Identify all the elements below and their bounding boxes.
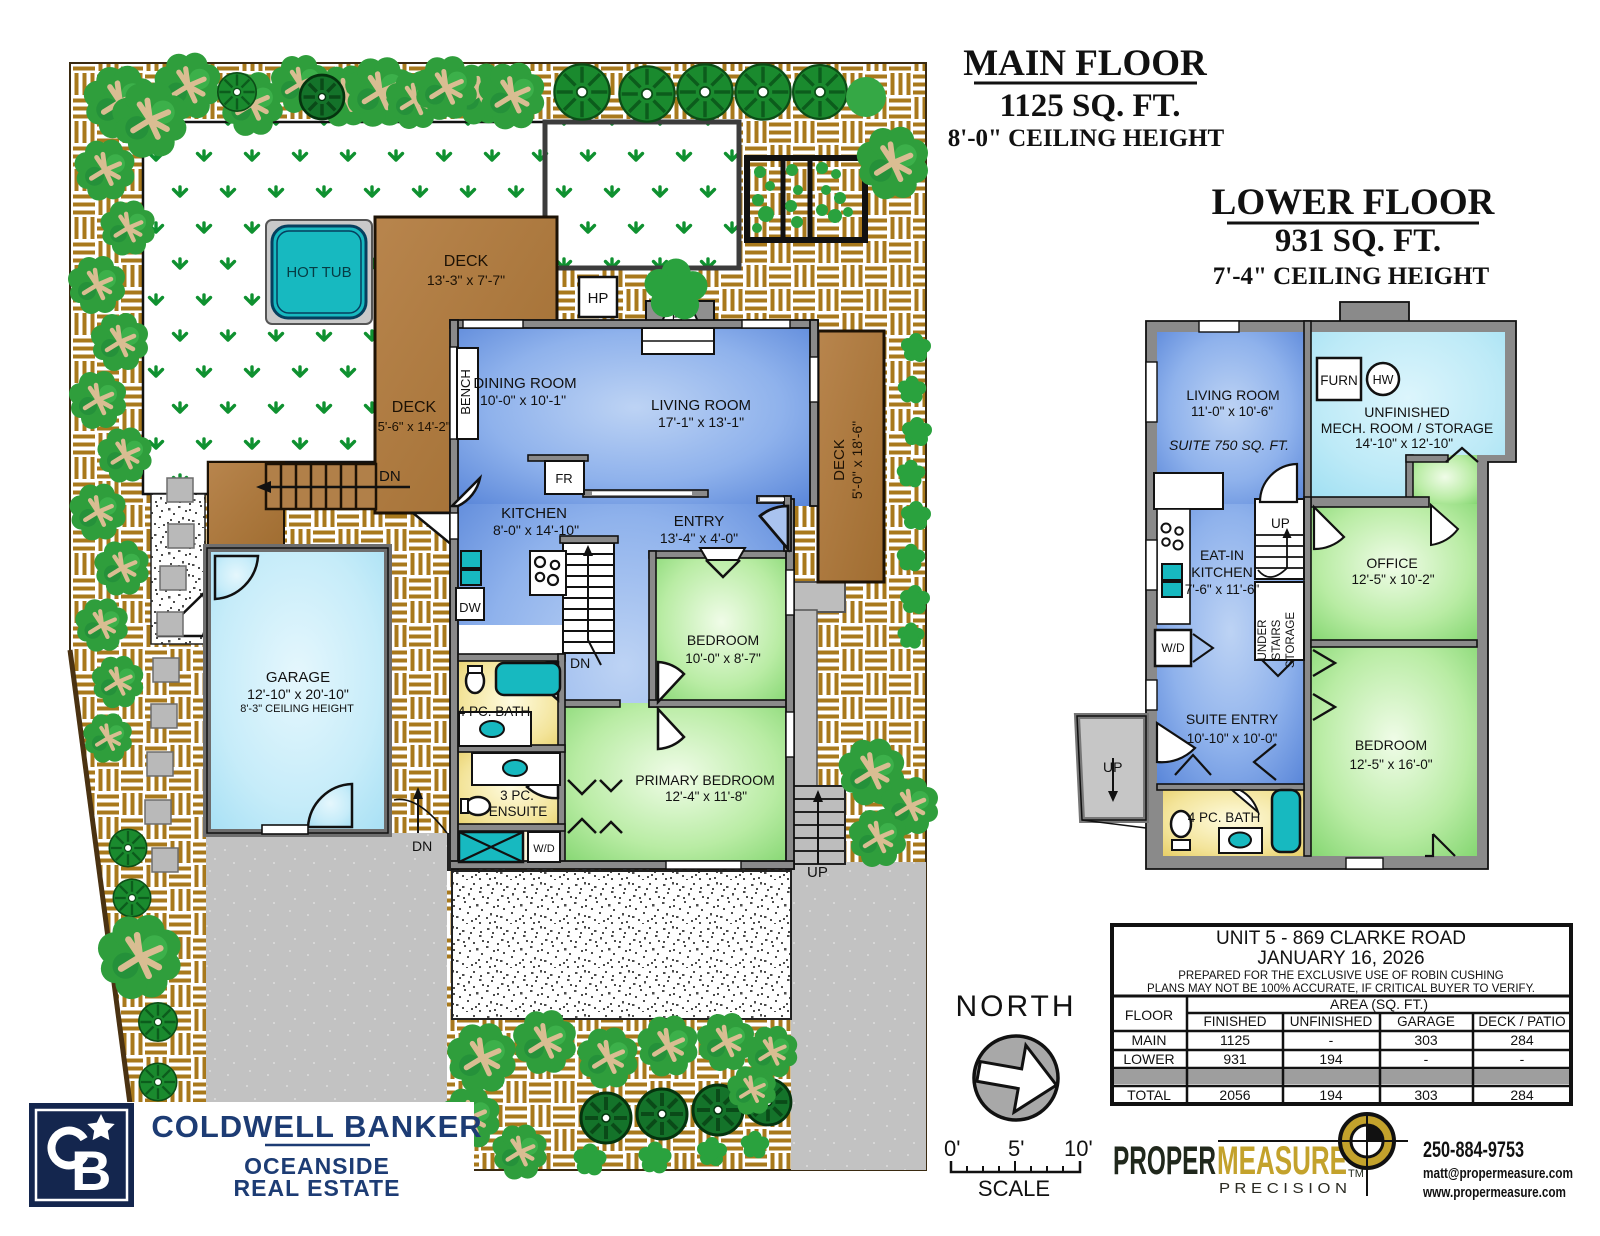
svg-text:11'-0" x 10'-6": 11'-0" x 10'-6": [1191, 404, 1273, 419]
svg-text:DW: DW: [459, 600, 481, 615]
svg-text:REAL ESTATE: REAL ESTATE: [234, 1175, 401, 1201]
svg-text:10'-10" x 10'-0": 10'-10" x 10'-0": [1187, 731, 1278, 746]
svg-text:PREPARED FOR THE EXCLUSIVE USE: PREPARED FOR THE EXCLUSIVE USE OF ROBIN …: [1178, 970, 1504, 982]
svg-text:8'-3" CEILING HEIGHT: 8'-3" CEILING HEIGHT: [240, 703, 354, 715]
svg-text:DN: DN: [570, 655, 590, 671]
svg-text:2056: 2056: [1219, 1087, 1250, 1103]
svg-text:EAT-IN: EAT-IN: [1200, 547, 1244, 563]
svg-text:-: -: [1329, 1032, 1334, 1048]
svg-text:HP: HP: [588, 290, 609, 307]
svg-text:4 PC. BATH: 4 PC. BATH: [458, 704, 531, 719]
svg-text:250-884-9753: 250-884-9753: [1423, 1137, 1524, 1162]
svg-text:GARAGE: GARAGE: [1397, 1014, 1455, 1029]
svg-text:5'-0" x 18'-6": 5'-0" x 18'-6": [849, 421, 865, 499]
svg-text:UNDER: UNDER: [1257, 620, 1269, 661]
svg-text:PLANS MAY NOT BE 100% ACCURATE: PLANS MAY NOT BE 100% ACCURATE, IF CRITI…: [1147, 983, 1535, 995]
svg-text:-: -: [1520, 1051, 1525, 1067]
svg-text:FURN: FURN: [1320, 373, 1358, 388]
svg-text:1125 SQ. FT.: 1125 SQ. FT.: [1000, 88, 1181, 124]
svg-text:194: 194: [1319, 1087, 1343, 1103]
svg-text:12'-10" x 20'-10": 12'-10" x 20'-10": [247, 686, 349, 702]
svg-text:OFFICE: OFFICE: [1366, 555, 1417, 571]
svg-text:HW: HW: [1373, 373, 1394, 387]
svg-text:LIVING ROOM: LIVING ROOM: [651, 397, 751, 414]
svg-text:TOTAL: TOTAL: [1127, 1087, 1171, 1103]
svg-text:5': 5': [1008, 1136, 1024, 1161]
svg-text:JANUARY 16, 2026: JANUARY 16, 2026: [1257, 948, 1424, 969]
svg-text:ENSUITE: ENSUITE: [489, 804, 548, 819]
svg-text:UNFINISHED: UNFINISHED: [1364, 404, 1450, 420]
svg-text:DINING ROOM: DINING ROOM: [473, 375, 576, 392]
svg-text:LOWER: LOWER: [1123, 1051, 1174, 1067]
svg-text:7'-6" x 11'-6": 7'-6" x 11'-6": [1185, 582, 1260, 597]
svg-text:1125: 1125: [1220, 1032, 1250, 1048]
svg-text:12'-4" x 11'-8": 12'-4" x 11'-8": [665, 789, 747, 804]
svg-text:PROPER: PROPER: [1113, 1139, 1216, 1183]
svg-text:MECH. ROOM / STORAGE: MECH. ROOM / STORAGE: [1321, 420, 1493, 436]
svg-text:FINISHED: FINISHED: [1203, 1014, 1266, 1029]
svg-text:STORAGE: STORAGE: [1285, 612, 1297, 668]
svg-text:SUITE ENTRY: SUITE ENTRY: [1186, 711, 1279, 727]
svg-text:931: 931: [1223, 1051, 1247, 1067]
svg-text:DN: DN: [379, 468, 401, 485]
svg-text:B: B: [71, 1139, 111, 1202]
svg-text:BEDROOM: BEDROOM: [687, 632, 759, 648]
svg-text:P R E C I S I O N: P R E C I S I O N: [1219, 1180, 1347, 1197]
svg-text:8'-0" CEILING HEIGHT: 8'-0" CEILING HEIGHT: [948, 125, 1225, 152]
svg-text:LOWER FLOOR: LOWER FLOOR: [1212, 182, 1496, 223]
svg-text:DN: DN: [412, 838, 432, 854]
svg-text:14'-10" x 12'-10": 14'-10" x 12'-10": [1355, 436, 1453, 451]
svg-text:303: 303: [1414, 1032, 1438, 1048]
svg-text:DECK: DECK: [392, 399, 437, 416]
svg-text:13'-4" x 4'-0": 13'-4" x 4'-0": [660, 530, 738, 546]
svg-text:TM: TM: [1348, 1168, 1364, 1180]
svg-text:MAIN: MAIN: [1132, 1032, 1167, 1048]
svg-text:www.propermeasure.com: www.propermeasure.com: [1422, 1184, 1566, 1201]
svg-text:284: 284: [1510, 1087, 1534, 1103]
svg-text:931 SQ. FT.: 931 SQ. FT.: [1275, 223, 1441, 259]
svg-text:17'-1" x 13'-1": 17'-1" x 13'-1": [658, 414, 744, 430]
svg-text:BENCH: BENCH: [458, 369, 473, 415]
svg-text:DECK: DECK: [831, 439, 848, 481]
svg-text:SUITE 750 SQ. FT.: SUITE 750 SQ. FT.: [1169, 437, 1289, 453]
svg-text:KITCHEN: KITCHEN: [1191, 564, 1252, 580]
svg-text:AREA (SQ. FT.): AREA (SQ. FT.): [1330, 996, 1428, 1012]
svg-text:MAIN FLOOR: MAIN FLOOR: [963, 43, 1208, 84]
svg-text:4 PC. BATH: 4 PC. BATH: [1188, 810, 1261, 825]
svg-text:BEDROOM: BEDROOM: [1355, 737, 1427, 753]
svg-text:PRIMARY BEDROOM: PRIMARY BEDROOM: [635, 772, 775, 788]
svg-text:NORTH: NORTH: [955, 990, 1076, 1023]
svg-text:UP: UP: [807, 864, 828, 881]
svg-text:W/D: W/D: [533, 843, 554, 855]
svg-text:DECK: DECK: [444, 253, 489, 270]
svg-text:KITCHEN: KITCHEN: [501, 505, 567, 522]
svg-text:5'-6" x 14'-2": 5'-6" x 14'-2": [378, 419, 451, 434]
svg-text:GARAGE: GARAGE: [266, 669, 330, 686]
svg-text:10'-0" x 10'-1": 10'-0" x 10'-1": [480, 392, 566, 408]
svg-text:matt@propermeasure.com: matt@propermeasure.com: [1423, 1165, 1573, 1182]
svg-text:ENTRY: ENTRY: [674, 513, 725, 530]
svg-text:13'-3" x 7'-7": 13'-3" x 7'-7": [427, 272, 505, 288]
svg-text:284: 284: [1510, 1032, 1534, 1048]
svg-text:10'-0" x 8'-7": 10'-0" x 8'-7": [685, 651, 761, 666]
svg-text:MEASURE: MEASURE: [1217, 1139, 1347, 1183]
svg-text:-: -: [1424, 1051, 1429, 1067]
svg-text:FR: FR: [555, 471, 572, 486]
svg-text:7'-4" CEILING HEIGHT: 7'-4" CEILING HEIGHT: [1213, 263, 1490, 290]
svg-text:DECK / PATIO: DECK / PATIO: [1478, 1014, 1565, 1029]
svg-text:LIVING ROOM: LIVING ROOM: [1186, 387, 1279, 403]
svg-text:SCALE: SCALE: [978, 1176, 1050, 1201]
svg-text:12'-5" x 16'-0": 12'-5" x 16'-0": [1349, 757, 1432, 772]
svg-text:W/D: W/D: [1161, 641, 1185, 655]
svg-text:0': 0': [944, 1136, 960, 1161]
svg-text:FLOOR: FLOOR: [1125, 1007, 1173, 1023]
svg-text:12'-5" x 10'-2": 12'-5" x 10'-2": [1351, 572, 1434, 587]
svg-text:194: 194: [1319, 1051, 1343, 1067]
svg-text:10': 10': [1064, 1136, 1093, 1161]
svg-text:3 PC.: 3 PC.: [500, 788, 534, 803]
svg-text:UNIT 5 - 869 CLARKE ROAD: UNIT 5 - 869 CLARKE ROAD: [1216, 928, 1466, 949]
svg-text:UNFINISHED: UNFINISHED: [1290, 1014, 1373, 1029]
svg-text:8'-0" x 14'-10": 8'-0" x 14'-10": [493, 522, 579, 538]
svg-text:COLDWELL BANKER: COLDWELL BANKER: [151, 1109, 482, 1144]
svg-text:303: 303: [1414, 1087, 1438, 1103]
svg-text:HOT TUB: HOT TUB: [286, 264, 351, 281]
svg-text:STAIRS: STAIRS: [1271, 619, 1283, 660]
